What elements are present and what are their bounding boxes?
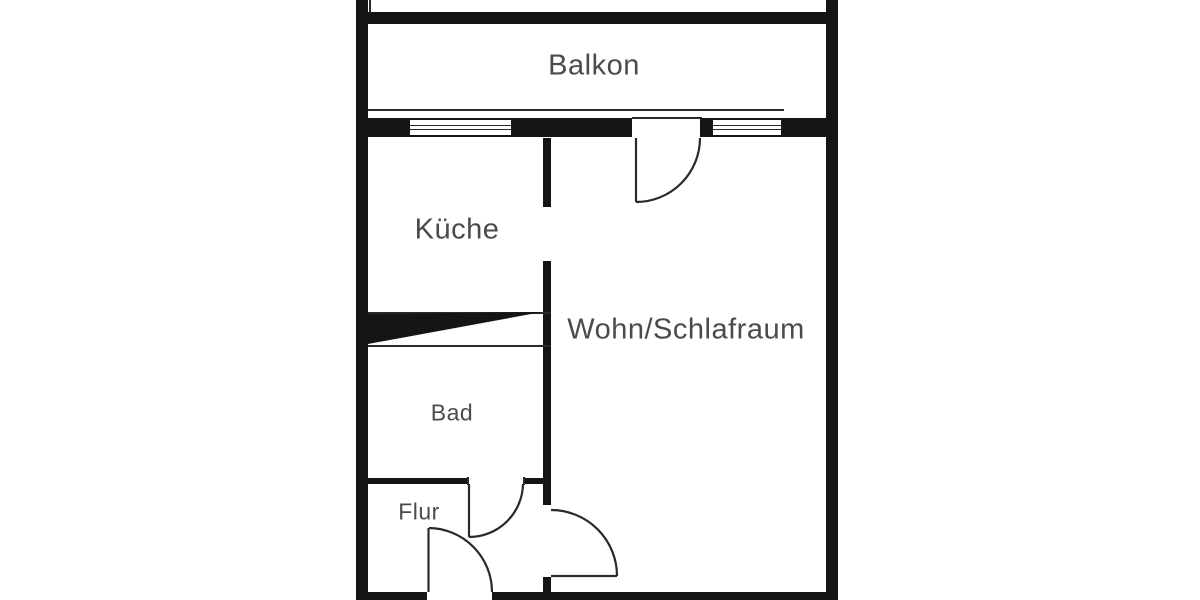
room-label-bad: Bad [431, 400, 473, 427]
shaft-wedge-triangle [368, 312, 542, 344]
bath-door-arc [469, 484, 523, 537]
room-label-wohn-schlafraum: Wohn/Schlafraum [567, 314, 804, 347]
room-label-kueche: Küche [415, 214, 500, 247]
room-label-flur: Flur [398, 499, 440, 526]
balcony-door-arc [636, 138, 700, 202]
entry-door-arc [429, 528, 492, 592]
floor-plan: Balkon Küche Wohn/Schlafraum Bad Flur [0, 0, 1200, 600]
door-symbols-layer [0, 0, 1200, 600]
living-room-door-arc [551, 510, 617, 576]
room-label-balkon: Balkon [548, 50, 640, 83]
